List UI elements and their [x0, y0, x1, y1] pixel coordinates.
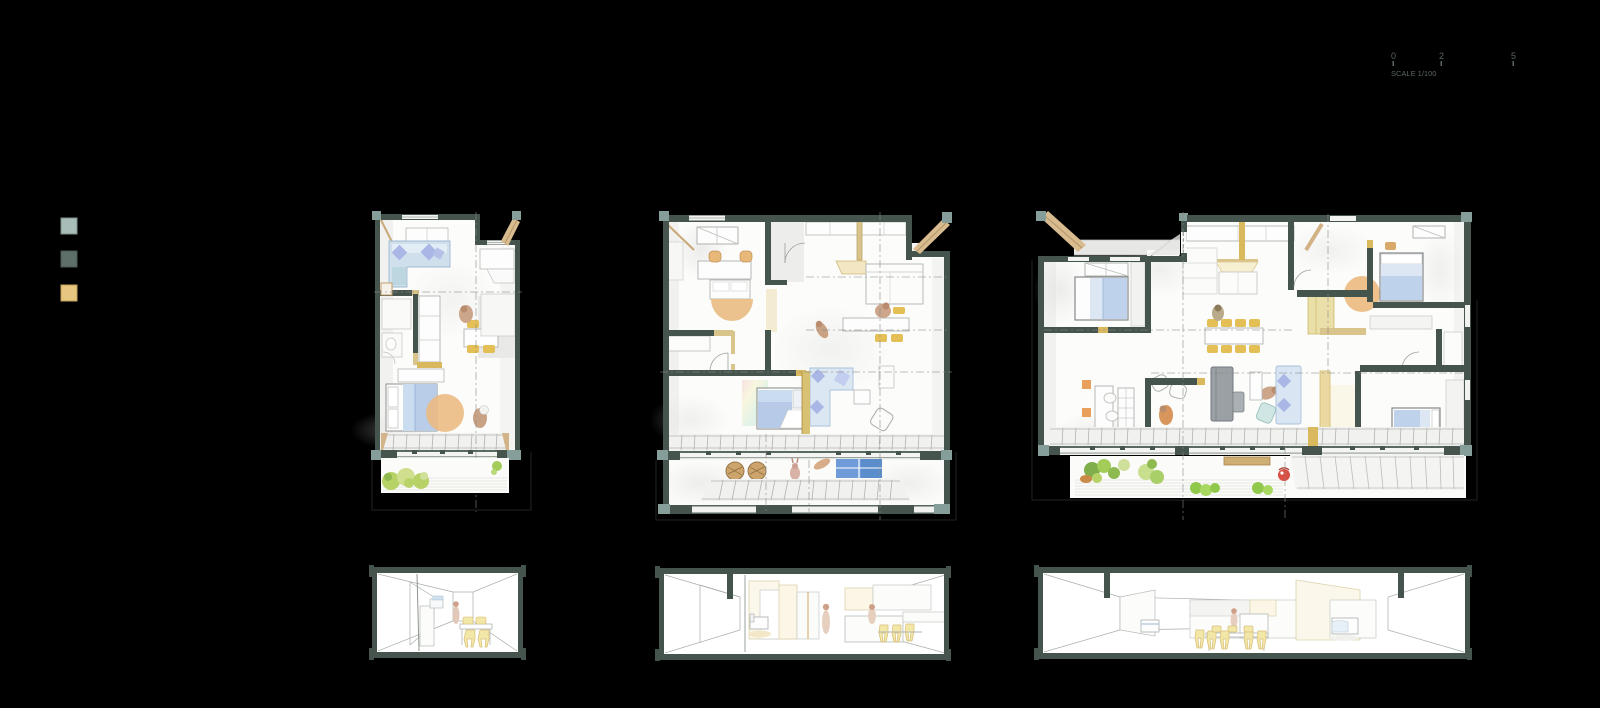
svg-text:5: 5 [1511, 51, 1516, 61]
svg-text:0: 0 [1391, 51, 1396, 61]
svg-text:2: 2 [1439, 51, 1444, 61]
svg-text:SCALE 1/100: SCALE 1/100 [1391, 69, 1436, 78]
